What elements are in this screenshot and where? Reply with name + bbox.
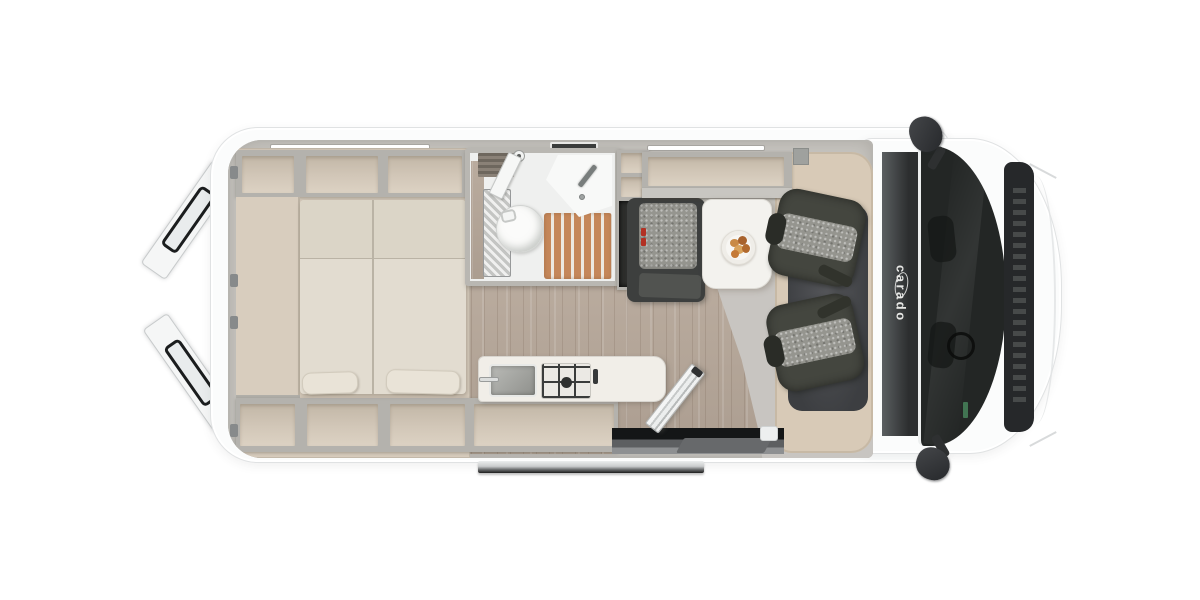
dinette-table <box>702 199 772 289</box>
bathroom <box>465 148 620 286</box>
double-bed-mattress <box>300 200 466 394</box>
glass-reflection <box>923 146 988 446</box>
mattress-seam-horizontal <box>300 258 466 259</box>
rear-door-top-window <box>160 185 217 255</box>
rear-door-hinge <box>230 424 238 437</box>
seatbelt-buckle <box>641 238 646 246</box>
shelf-compartment <box>648 157 784 186</box>
windshield-sticker <box>963 402 968 418</box>
overhead-shelf-row-top <box>236 150 470 197</box>
pastry <box>731 250 739 258</box>
dashboard-shadow <box>927 215 958 263</box>
seatbelt-buckle <box>641 228 646 236</box>
cab-seat-passenger <box>763 185 873 298</box>
door-pillar-trim <box>760 426 778 441</box>
plate-with-food <box>721 230 756 265</box>
interior-living-area <box>228 140 873 458</box>
cowl-grille <box>1013 188 1026 406</box>
pastry <box>742 244 750 253</box>
inner-door-step <box>676 438 772 453</box>
bed-side-panel <box>236 197 300 397</box>
mattress-seam-vertical <box>372 200 374 394</box>
mattress-head-section <box>300 200 466 258</box>
overhead-shelf-dinette <box>642 152 792 198</box>
basin-drain <box>579 194 585 200</box>
kitchen-counter <box>478 356 666 402</box>
pillow <box>386 369 461 395</box>
steering-wheel-icon <box>947 332 975 360</box>
hood-contour-line <box>1036 176 1056 424</box>
shelf-compartment <box>306 156 378 193</box>
hob-control-knob <box>593 369 598 384</box>
dinette-bench <box>627 198 705 302</box>
bench-cushion <box>639 203 697 269</box>
shelf-compartment <box>388 156 462 193</box>
shelf-compartment <box>240 404 295 446</box>
wiper-cowl <box>1004 162 1034 432</box>
rear-door-hinge <box>230 166 238 179</box>
roof-brand-band: carado <box>882 152 920 436</box>
pillow <box>302 371 359 395</box>
roof-window-strip-dinette <box>647 145 765 151</box>
burner-cap <box>561 377 572 388</box>
bumper-facet <box>1029 431 1056 447</box>
kitchen-faucet-icon <box>479 377 499 382</box>
rear-door-hinge <box>230 316 238 329</box>
bench-footrest <box>639 273 702 299</box>
shelf-compartment <box>390 404 465 446</box>
storage-shelf-row-bottom <box>236 398 618 452</box>
shelf-compartment <box>242 156 294 193</box>
cab-seat-driver <box>763 289 873 402</box>
shelf-front-lip <box>642 188 792 198</box>
rear-door-hinge <box>230 274 238 287</box>
shelf-compartment <box>307 404 378 446</box>
floorplan-canvas: carado <box>0 0 1200 600</box>
kitchen-lower-cabinet <box>474 404 614 446</box>
roof-vent-box <box>793 148 809 165</box>
entry-step <box>478 461 704 473</box>
shower-wood-grate <box>544 213 612 279</box>
